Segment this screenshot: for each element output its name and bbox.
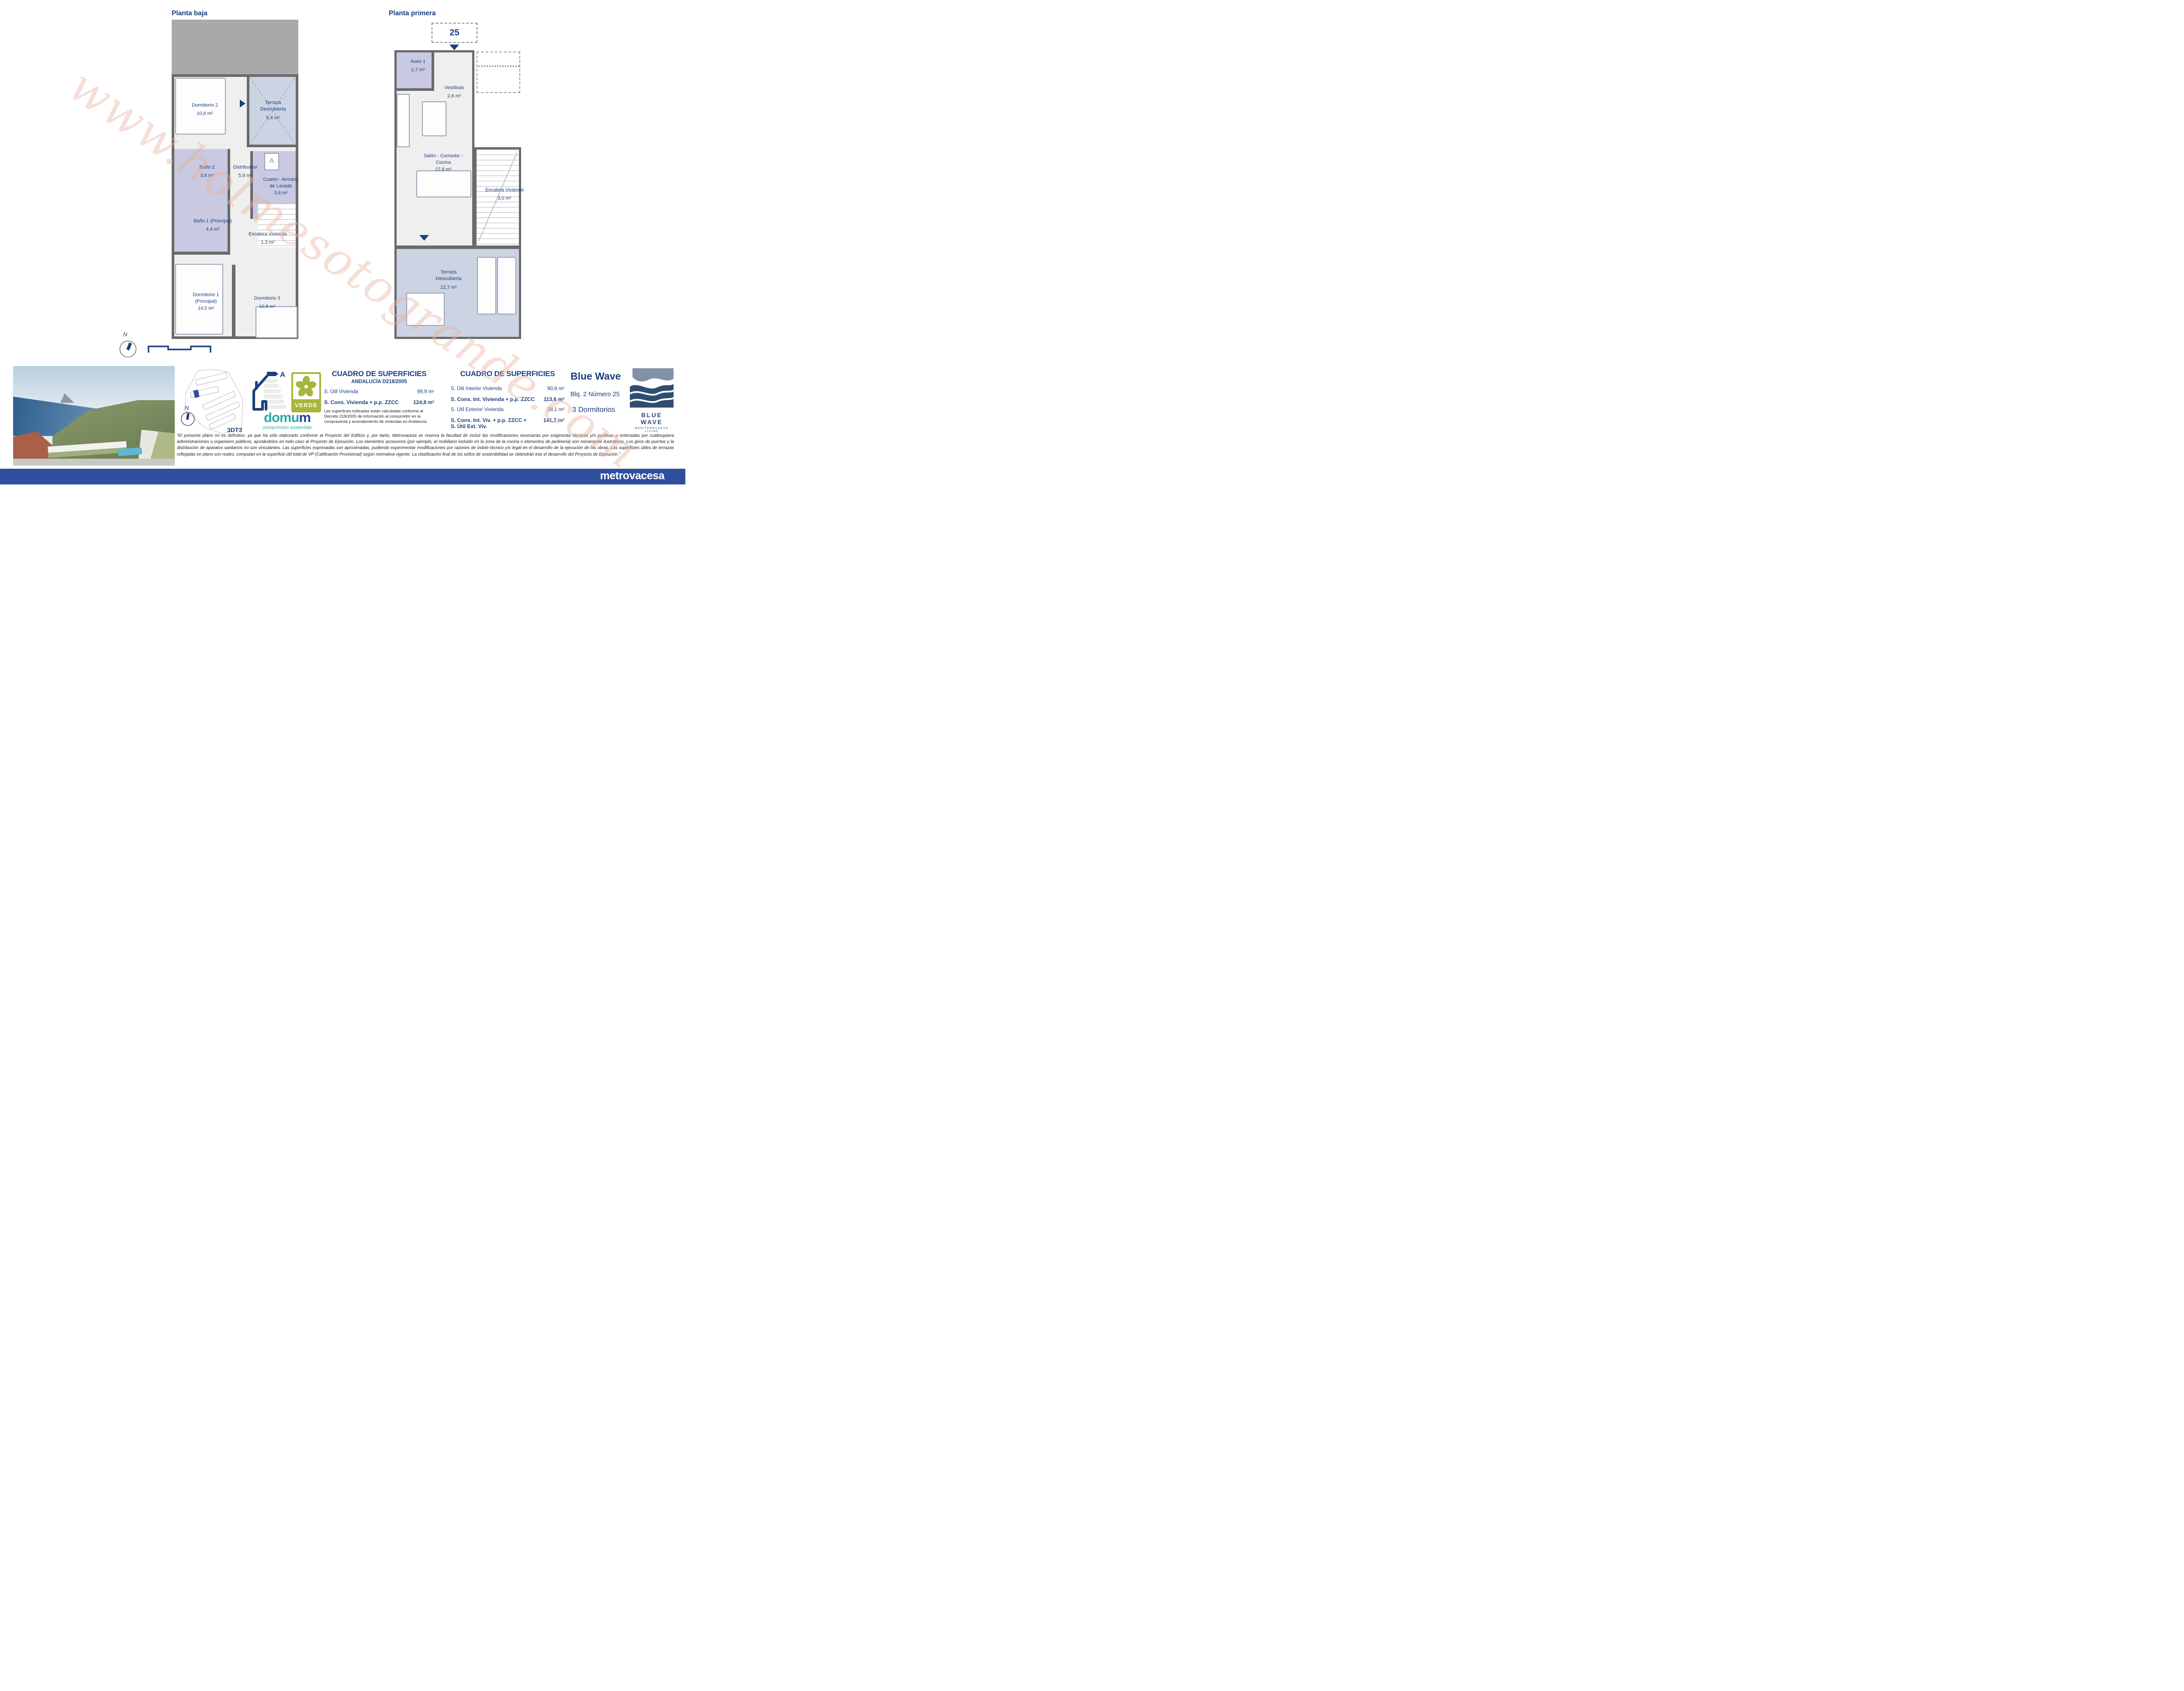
dining-table	[422, 101, 446, 136]
planta-primera-plan: 25 Aseo 1 2,7 m² Vestíbulo 2,6 m² Saló	[394, 22, 522, 339]
site-compass-needle	[186, 413, 190, 420]
site-plan-label: 3DT3	[227, 426, 242, 433]
energy-rating-arrow	[267, 372, 278, 376]
table-row: S. Útil Interior Vivienda90,8 m²	[451, 386, 564, 391]
label-escalera-primera: Escalera Vivienda 3,0 m²	[470, 187, 539, 202]
label-dormitorio1: Dormitorio 1 (Principal) 14,5 m²	[174, 292, 238, 312]
table-row: S. Cons. Vivienda + p.p. ZZCC124,8 m²	[324, 399, 434, 405]
sun-lounger-2	[497, 257, 516, 315]
planta-baja-unit: A Dormitorio 2 10,6 m² Terraza Descubier…	[172, 74, 298, 339]
table-row: S. Cons. Int. Vivienda + p.p. ZZCC113,6 …	[451, 396, 564, 402]
unit-number: 25	[449, 28, 459, 38]
planta-primera-title: Planta primera	[389, 10, 436, 17]
legal-disclaimer: “El presente plano no es definitivo, ya …	[177, 433, 674, 458]
planta-primera-unit: Aseo 1 2,7 m² Vestíbulo 2,6 m² Salón - C…	[394, 50, 474, 248]
terrace-access-arrow	[419, 235, 429, 241]
planta-baja-title: Planta baja	[172, 10, 207, 17]
photo-rock	[57, 393, 74, 403]
verde-badge: VERDE	[291, 372, 321, 412]
compass-n-label: N	[123, 331, 127, 338]
floor-plan-sheet: Planta baja	[0, 0, 685, 484]
unit-bedrooms: 3 Dormitorios	[570, 406, 632, 414]
blue-wave-logo-name: BLUE WAVE	[629, 412, 674, 425]
domum-tagline: compromiso sostenible	[251, 425, 323, 430]
unit-number-box: 25	[432, 23, 477, 43]
table-row: S. Útil Exterior Vivienda28,1 m²	[451, 407, 564, 412]
blue-wave-logo: BLUE WAVE MEDITERRANEAN LIVING	[629, 368, 674, 433]
unit-block-number: Blq. 2 Número 25	[570, 391, 632, 398]
surface-table-title: CUADRO DE SUPERFICIES	[324, 370, 434, 378]
domum-logo: domum compromiso sostenible	[251, 411, 323, 430]
blue-wave-logo-tagline: MEDITERRANEAN LIVING	[629, 427, 674, 433]
label-aseo1: Aseo 1 2,7 m²	[398, 59, 438, 74]
compass-baja: N	[119, 331, 141, 358]
bed-dormitorio3	[256, 306, 297, 338]
label-dormitorio3: Dormitorio 3 10,8 m²	[235, 295, 299, 311]
label-cuarto-lavado: Cuarto - Armario de Lavado 3,8 m²	[255, 176, 307, 197]
table-row: S. Cons. Int. Viv. + p.p. ZZCC + S. Útil…	[451, 417, 564, 429]
blue-wave-logo-mark	[630, 368, 674, 408]
domum-text-blue: m	[299, 410, 311, 425]
surface-table-subtitle: ANDALUCÍA D218/2005	[324, 379, 434, 384]
surface-table-title: CUADRO DE SUPERFICIES	[451, 370, 564, 378]
planta-baja-plan: A Dormitorio 2 10,6 m² Terraza Descubier…	[172, 20, 298, 339]
neighbor-block	[172, 20, 298, 74]
entry-marker-baja	[240, 100, 245, 107]
project-name: Blue Wave	[570, 370, 632, 382]
surface-table-note: Las superficies indicadas están calculad…	[324, 408, 434, 424]
aerial-photo	[13, 366, 175, 466]
label-terraza-baja: Terraza Descubierta 5,4 m²	[251, 100, 295, 121]
verde-label: VERDE	[293, 402, 319, 408]
surface-table-andalucia: CUADRO DE SUPERFICIES ANDALUCÍA D218/200…	[324, 370, 434, 424]
terrace-table	[406, 293, 445, 326]
unit-info: Blue Wave Blq. 2 Número 25 3 Dormitorios	[570, 370, 632, 414]
footer-bar: metrovacesa	[0, 469, 685, 484]
label-terraza-primera: Terraza Descubierta 22,7 m²	[414, 269, 484, 291]
energy-certificate-icon: A	[249, 368, 291, 412]
photo-road	[13, 459, 175, 466]
site-plan: N 3DT3	[178, 368, 247, 436]
label-escalera-baja: Escalera Vivienda 1,3 m²	[235, 231, 301, 246]
unit-entry-arrow	[449, 45, 459, 50]
table-row: S. Útil Vivienda99,9 m²	[324, 389, 434, 394]
domum-text-teal: domu	[264, 410, 299, 425]
label-vestibulo: Vestíbulo 2,6 m²	[435, 85, 474, 100]
neighbor-dashed	[477, 52, 520, 93]
label-salon: Salón - Comedor - Cocina 27,6 m²	[406, 153, 480, 173]
metrovacesa-logo: metrovacesa	[600, 470, 664, 482]
surface-table-unit: CUADRO DE SUPERFICIES S. Útil Interior V…	[451, 370, 564, 429]
kitchen-counter	[397, 94, 410, 147]
room-terraza-primera: Terraza Descubierta 22,7 m²	[394, 247, 521, 339]
sofa	[416, 170, 471, 197]
balustrade-dots	[478, 66, 519, 67]
label-dormitorio2: Dormitorio 2 10,6 m²	[174, 102, 235, 118]
verde-leaf-icon	[295, 375, 318, 398]
site-compass-n: N	[185, 405, 189, 411]
scale-bar	[147, 343, 212, 354]
energy-rating-letter: A	[280, 370, 285, 379]
